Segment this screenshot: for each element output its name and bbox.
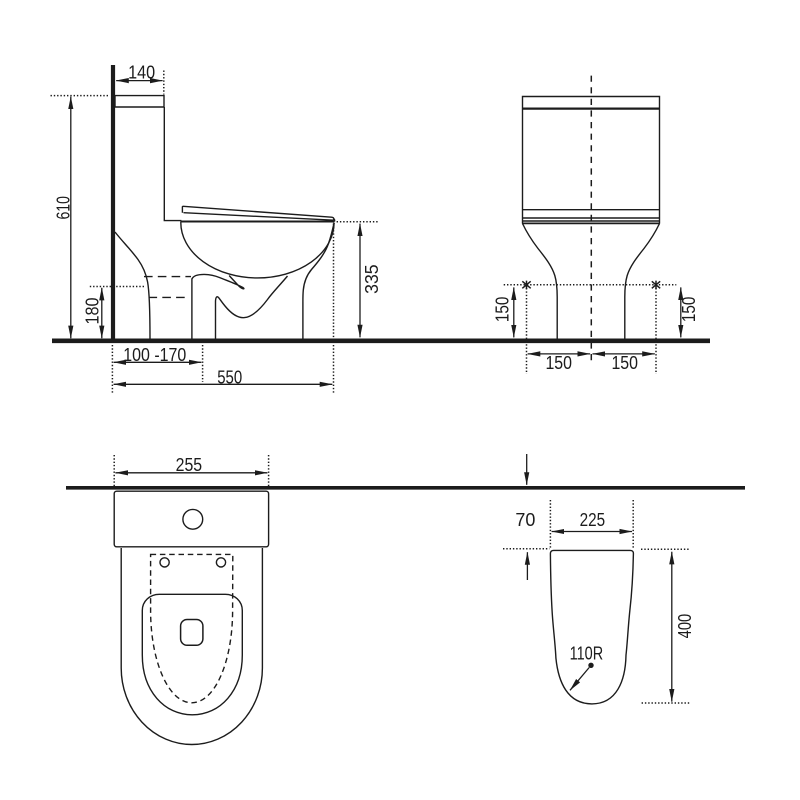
svg-text:150: 150	[491, 297, 512, 323]
svg-text:610: 610	[52, 196, 73, 220]
svg-text:140: 140	[128, 62, 155, 83]
svg-text:100 -170: 100 -170	[123, 344, 186, 365]
svg-text:70: 70	[515, 509, 535, 530]
svg-text:335: 335	[361, 264, 382, 294]
svg-text:225: 225	[580, 509, 606, 530]
svg-text:180: 180	[81, 298, 102, 325]
svg-text:400: 400	[674, 614, 695, 639]
svg-text:550: 550	[217, 366, 242, 387]
svg-text:150: 150	[545, 352, 572, 373]
svg-text:110R: 110R	[570, 643, 604, 664]
svg-text:255: 255	[176, 454, 203, 475]
svg-text:150: 150	[678, 297, 699, 323]
svg-text:150: 150	[611, 352, 638, 373]
